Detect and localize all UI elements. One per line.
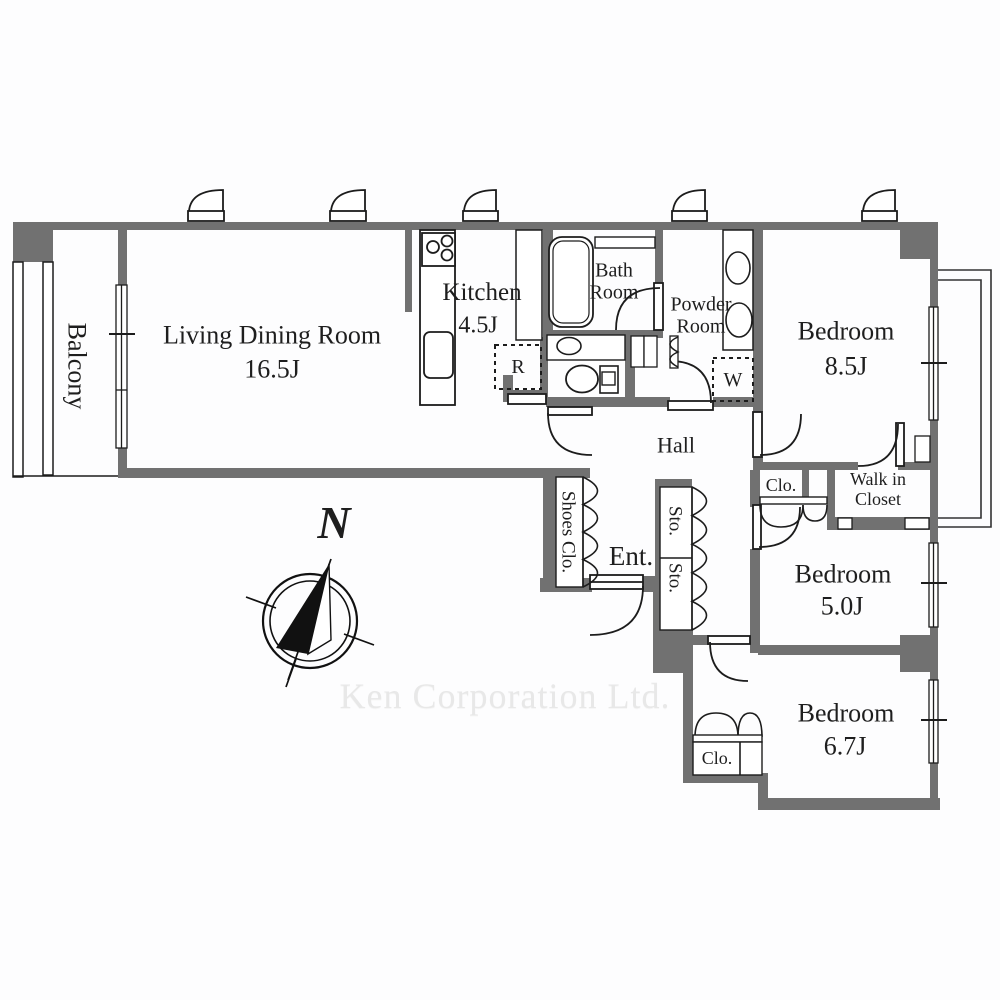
living-hall-door	[548, 407, 592, 455]
room-label-balcony: Balcony	[62, 323, 91, 410]
room-size-living-dining: 16.5J	[244, 354, 300, 383]
room-label-walk-in-closet: Walk in Closet	[832, 469, 924, 509]
walkin-closet-door	[858, 423, 904, 466]
bath-shelf	[595, 237, 655, 248]
washing-machine-label: W	[724, 369, 743, 391]
closet1-accordion	[760, 497, 827, 527]
watermark: Ken Corporation Ltd.	[340, 676, 671, 716]
room-label-closet1: Clo.	[766, 475, 797, 495]
room-label-powder: Powder Room	[657, 294, 745, 339]
room-label-living-dining: Living Dining Room	[163, 320, 381, 349]
top-wall-vent-icons	[188, 190, 897, 221]
room-size-kitchen: 4.5J	[458, 313, 497, 340]
room-label-kitchen: Kitchen	[442, 279, 521, 307]
room-label-storage1: Sto.	[664, 506, 685, 536]
floor-plan: Balcony Living Dining Room 16.5J Kitchen…	[0, 0, 1000, 1000]
room-label-bath: Bath Room	[575, 260, 653, 305]
toilet-icon	[566, 366, 618, 394]
room-label-closet2: Clo.	[702, 748, 733, 768]
bedroom3-window	[921, 680, 947, 763]
balcony-sliding-window	[109, 285, 135, 448]
bedroom1-window	[921, 307, 947, 420]
entrance-door	[590, 575, 643, 635]
room-label-bedroom2: Bedroom	[795, 559, 892, 588]
vanity-sink-icon	[547, 335, 625, 360]
toilet-door	[508, 394, 546, 404]
compass-icon	[246, 559, 374, 687]
room-size-bedroom3: 6.7J	[824, 731, 867, 760]
room-label-hall: Hall	[657, 434, 695, 459]
right-balcony-railing	[938, 270, 991, 527]
room-label-entrance: Ent.	[609, 541, 653, 571]
vestibule-bifold-door	[631, 336, 678, 368]
refrigerator-label: R	[511, 356, 524, 378]
bedroom2-window	[921, 543, 947, 627]
kitchen-counter	[420, 230, 455, 405]
kitchen-sink-icon	[424, 332, 453, 378]
room-label-shoes-closet: Shoes Clo.	[557, 491, 578, 573]
room-label-bedroom3: Bedroom	[798, 698, 895, 727]
room-size-bedroom1: 8.5J	[825, 351, 868, 380]
bedroom1-door	[753, 412, 801, 457]
compass-north-label: N	[317, 497, 350, 549]
bedroom3-door	[708, 636, 750, 681]
room-label-storage2: Sto.	[664, 563, 685, 593]
room-size-bedroom2: 5.0J	[821, 591, 864, 620]
room-label-bedroom1: Bedroom	[798, 316, 895, 345]
